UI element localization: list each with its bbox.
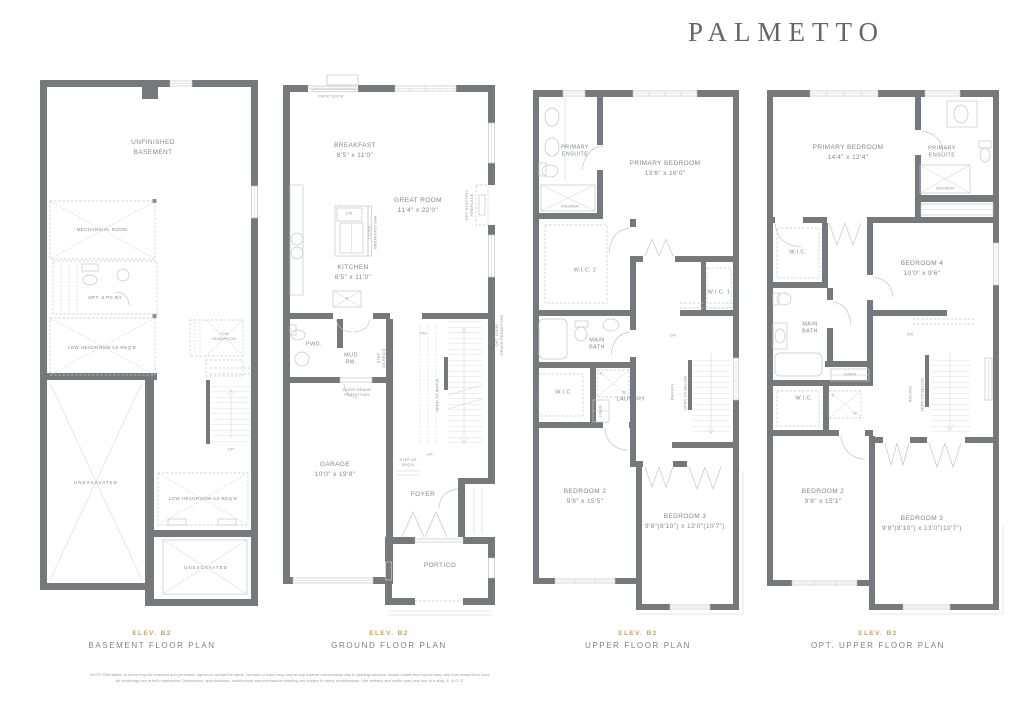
disclaimer-note: NOTE: Orientation of home may be reverse… [60,672,520,685]
room-label-bedroom4: BEDROOM 4 10'0" x 9'6" [901,259,944,279]
caption-name-ground: GROUND FLOOR PLAN [331,641,447,650]
room-label-great-room: GREAT ROOM 11'4" x 22'0" [394,196,442,216]
label-washer-upper: W [622,391,626,396]
label-fridge: F [346,297,349,302]
page-title: PALMETTO [688,17,885,48]
fireplace [476,185,488,225]
label-opt-door-grade: OPT. DOOR GRADE PERMITTING [495,314,505,355]
label-up-ground: UP [427,453,433,458]
stairs [636,303,743,614]
room-label-wic-opt: W.I.C. [795,395,812,402]
caption-elev-opt-upper: ELEV. B2 [858,630,898,637]
label-dryer-upper: D [600,372,603,377]
label-dn-opt: DN [907,333,913,338]
room-label-wic-primary-opt: W.I.C. [789,249,806,256]
label-railing-opt: RAILING [909,386,914,403]
caption-name-upper: UPPER FLOOR PLAN [585,641,691,650]
stairs [210,368,252,443]
room-label-bedroom2-opt: BEDROOM 2 9'8" x 15'1" [802,487,845,507]
caption-elev-ground: ELEV. B2 [369,630,409,637]
stairs [420,319,482,445]
walls [40,80,258,606]
label-railing-upper: RAILING [671,384,676,401]
label-dryer-opt: D [832,394,835,399]
label-low-headroom-right: LOW HEADROOM AS REQ'D [169,496,238,502]
label-open-to-below-upper: OPEN TO BELOW [684,376,689,410]
label-opt-fireplace: OPT. ELECTRIC FIREPLACE [465,190,475,221]
opt-upper-plan-drawing [765,85,1005,617]
room-label-primary-bedroom: PRIMARY BEDROOM 13'6" x 16'0" [630,159,701,179]
room-label-primary-bedroom-opt: PRIMARY BEDROOM 14'4" x 12'4" [813,143,884,163]
label-low-headroom-left: LOW HEADROOM AS REQ'D [68,345,137,351]
label-dn-upper: DN [670,334,676,339]
label-dn-ground: DN [420,332,426,337]
label-low-headroom-small: LOW HEADROOM [212,332,236,342]
label-breakfast-bar: BREAKFAST BAR [374,215,379,249]
label-patio-door: PATIO DOOR [318,95,343,100]
room-label-bedroom3-opt: BEDROOM 3 9'8"(8'10") x 13'0"(10'7") [882,514,962,534]
room-label-main-bath-upper: MAIN BATH [589,338,605,353]
room-label-wic2: W.I.C. 2 [574,267,597,274]
disclaimer-line-2: All renderings are artist's impression. … [60,678,520,684]
label-step-req-mud: STEP AS REQ'D [377,348,387,367]
label-open-to-below-opt: OPEN TO BELOW [921,378,926,412]
room-label-mechanical: MECHANICAL ROOM [77,227,128,233]
floor-plan-sheet: PALMETTO [0,0,1024,701]
room-label-unfinished-basement: UNFINISHED BASEMENT [131,138,175,158]
basement-plan-drawing [30,78,262,630]
room-label-portico: PORTICO [424,561,456,571]
label-linen-upper: LINEN [599,405,604,417]
label-up-basement: UP [228,448,234,453]
label-opt-3pc: OPT. 3 PC R/I [88,295,121,301]
room-label-main-bath-opt: MAIN BATH [802,322,818,337]
label-unexcavated-left: UNEXCAVATED [74,480,118,486]
label-door-grade: DOOR GRADE PERMITTING [343,388,371,398]
caption-elev-upper: ELEV. B2 [618,630,658,637]
label-open-to-above: OPEN TO ABOVE [436,378,441,411]
room-label-primary-ensuite: PRIMARY ENSUITE [561,145,589,160]
room-label-laundry: LAUNDRY [617,396,646,403]
kitchen-fixtures [290,185,372,307]
room-label-kitchen: KITCHEN 8'5" x 11'0" [335,263,371,283]
caption-name-opt-upper: OPT. UPPER FLOOR PLAN [811,641,945,650]
bath-fixtures [539,319,630,359]
room-label-breakfast: BREAKFAST 8'5" x 11'0" [334,141,376,161]
stairs [873,319,1003,614]
room-label-foyer: FOYER [411,490,435,500]
room-label-mud: MUD RM. [344,353,358,368]
label-washer-opt: W [853,412,857,417]
room-label-wic-upper: W.I.C [555,389,570,396]
room-label-primary-ensuite-opt: PRIMARY ENSUITE [928,146,956,161]
label-step-req-foyer: STEP AS REQ'D [399,458,416,468]
label-dw: DW [346,212,353,217]
room-label-pwd: PWD. [306,341,322,348]
label-flush: FLUSH [368,225,373,238]
label-linen-opt: LINEN [844,373,856,378]
caption-name-basement: BASEMENT FLOOR PLAN [88,641,215,650]
powder-mud-fixtures [290,319,372,398]
label-shower-opt: SHOWER [936,187,954,192]
room-label-wic1: W.I.C. 1 [708,289,731,296]
room-label-bedroom2-upper: BEDROOM 2 9'8" x 15'5" [564,487,607,507]
label-shower-upper: SHOWER [561,205,579,210]
windows [170,81,258,218]
label-unexcavated-bottom: UNEXCAVATED [184,565,228,571]
caption-elev-basement: ELEV. B2 [132,630,172,637]
room-label-garage: GARAGE 10'0" x 19'8" [315,460,356,480]
room-label-bedroom3-upper: BEDROOM 3 9'8"(8'10") x 13'0"(10'7") [645,512,725,532]
